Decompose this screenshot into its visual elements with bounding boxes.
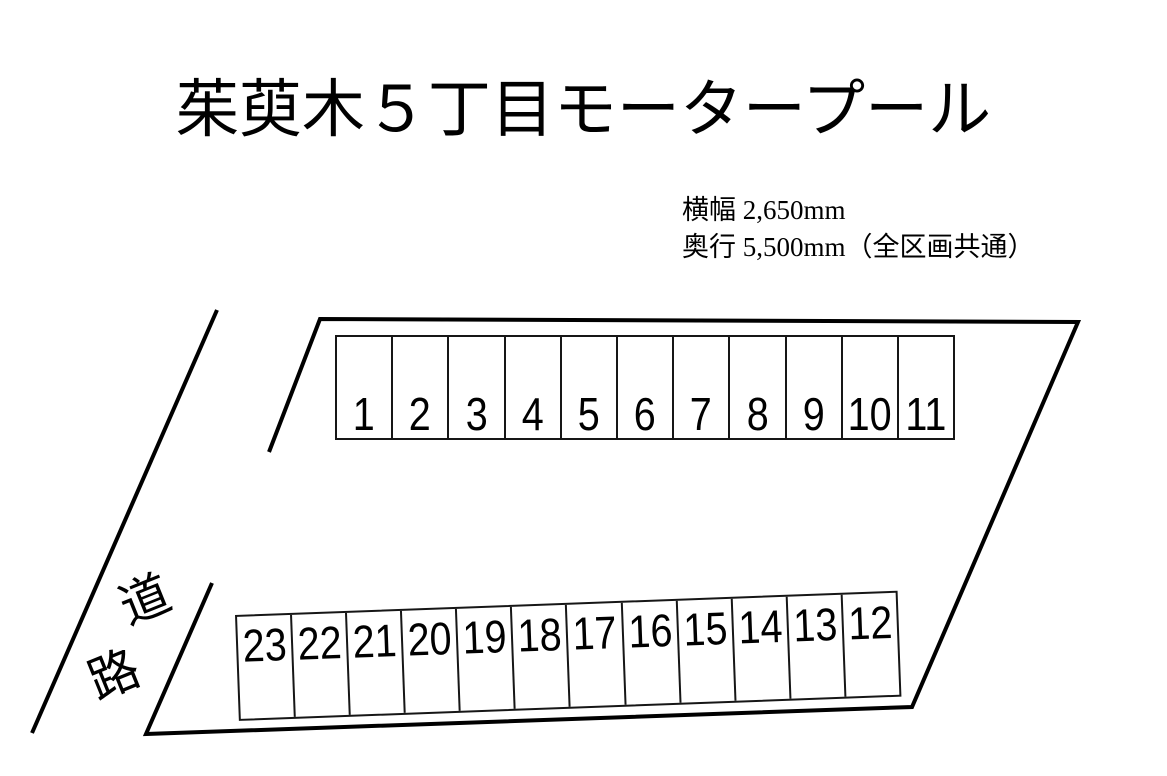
- parking-lot-diagram: 茱萸木５丁目モータープール 横幅 2,650mm 奥行 5,500mm（全区画共…: [0, 0, 1167, 776]
- space-number-3: 3: [465, 391, 487, 437]
- parking-space-5: 5: [560, 337, 616, 438]
- space-number-7: 7: [690, 391, 712, 437]
- space-number-4: 4: [522, 391, 544, 437]
- parking-space-23: 23: [237, 615, 294, 719]
- space-number-8: 8: [746, 391, 768, 437]
- parking-space-7: 7: [672, 337, 728, 438]
- parking-space-12: 12: [841, 593, 900, 697]
- parking-space-19: 19: [455, 607, 514, 711]
- space-number-13: 13: [792, 601, 838, 649]
- space-number-16: 16: [627, 607, 673, 655]
- parking-space-10: 10: [841, 337, 897, 438]
- space-number-5: 5: [578, 391, 600, 437]
- parking-space-16: 16: [620, 601, 679, 705]
- space-number-21: 21: [352, 617, 398, 665]
- top-parking-row: 1 2 3 4 5 6 7 8 9 10 11: [335, 335, 955, 440]
- parking-space-21: 21: [345, 611, 404, 715]
- space-number-10: 10: [848, 391, 892, 437]
- space-number-17: 17: [572, 609, 618, 657]
- parking-space-8: 8: [728, 337, 784, 438]
- parking-space-14: 14: [730, 597, 789, 701]
- parking-space-20: 20: [400, 609, 459, 713]
- space-number-20: 20: [407, 615, 453, 663]
- space-number-15: 15: [682, 605, 728, 653]
- parking-space-2: 2: [391, 337, 447, 438]
- parking-space-18: 18: [510, 605, 569, 709]
- parking-space-6: 6: [616, 337, 672, 438]
- space-number-22: 22: [297, 619, 343, 667]
- parking-space-13: 13: [785, 595, 844, 699]
- space-number-18: 18: [517, 611, 563, 659]
- space-number-1: 1: [353, 391, 375, 437]
- parking-space-9: 9: [785, 337, 841, 438]
- parking-space-4: 4: [504, 337, 560, 438]
- space-number-6: 6: [634, 391, 656, 437]
- space-number-19: 19: [462, 613, 508, 661]
- parking-space-22: 22: [290, 613, 349, 717]
- parking-space-11: 11: [897, 337, 953, 438]
- parking-space-17: 17: [565, 603, 624, 707]
- space-number-23: 23: [242, 621, 288, 669]
- parking-space-3: 3: [447, 337, 503, 438]
- space-number-14: 14: [737, 603, 783, 651]
- parking-space-1: 1: [337, 337, 391, 438]
- space-number-11: 11: [905, 391, 946, 437]
- parking-space-15: 15: [675, 599, 734, 703]
- space-number-12: 12: [847, 599, 893, 647]
- space-number-2: 2: [409, 391, 431, 437]
- space-number-9: 9: [803, 391, 825, 437]
